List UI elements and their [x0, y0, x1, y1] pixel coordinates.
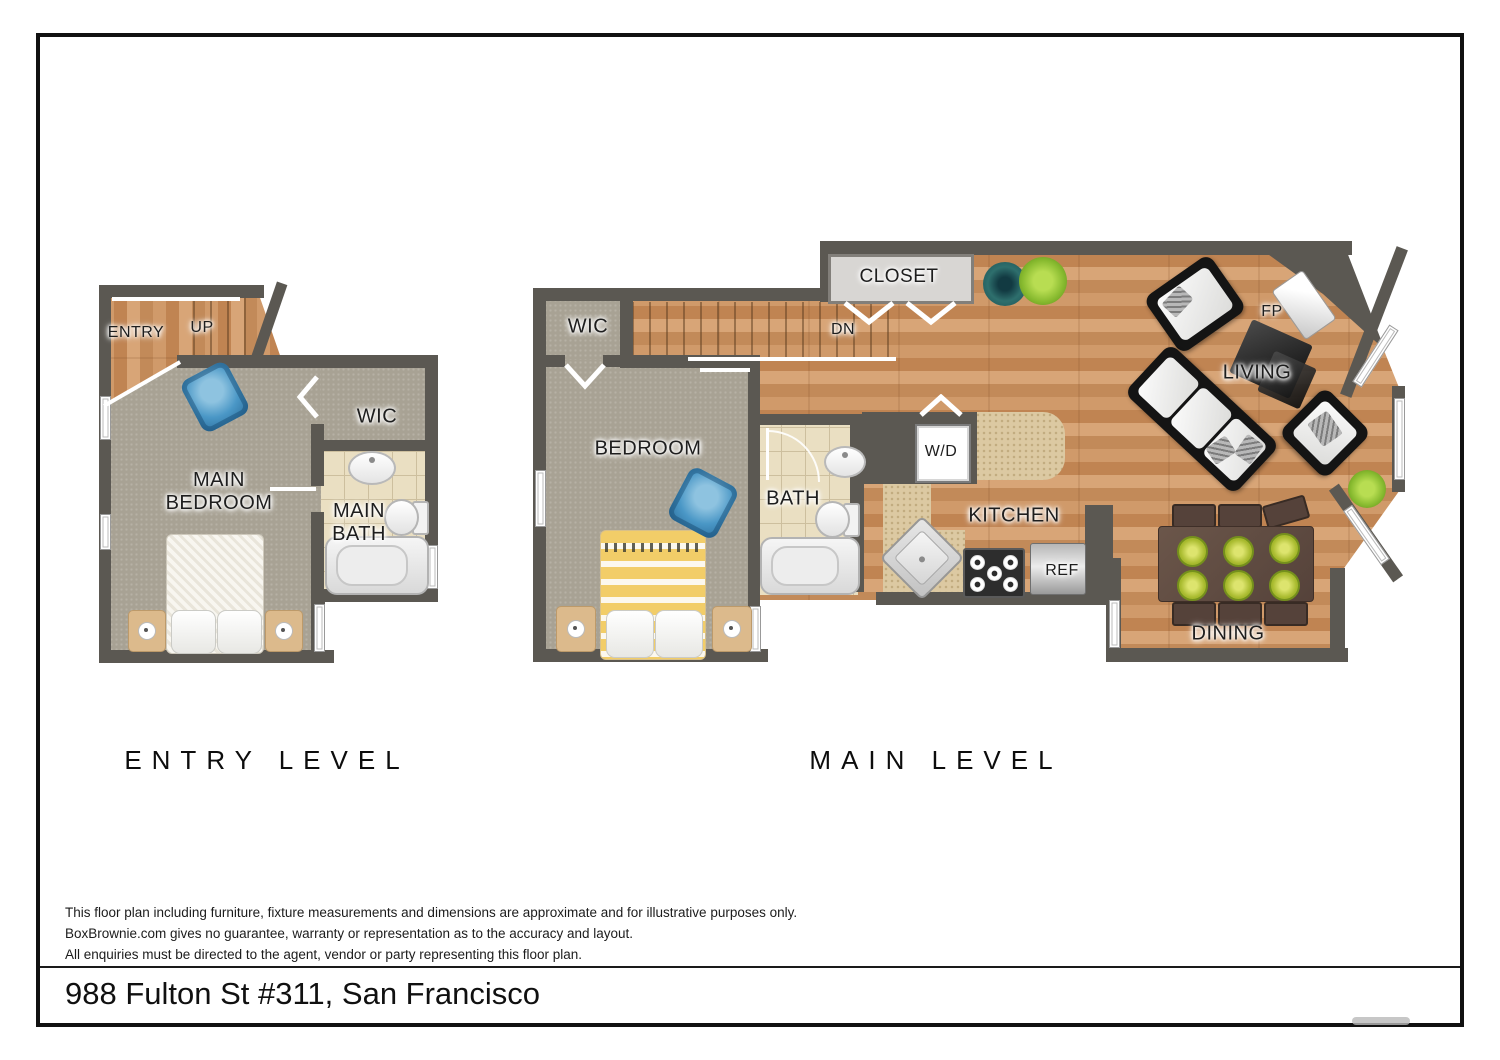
pillow — [655, 610, 703, 658]
nightstand — [128, 610, 166, 652]
toilet — [815, 501, 850, 538]
room-label-bath: BATH — [766, 488, 820, 511]
bathroom-sink — [824, 446, 866, 478]
door-swing-icon — [563, 362, 607, 390]
dining-chair — [1218, 504, 1262, 528]
plant-icon — [1348, 470, 1386, 508]
lamp-icon — [723, 620, 741, 638]
property-address: 988 Fulton St #311, San Francisco — [40, 976, 540, 1012]
disclaimer-line: This floor plan including furniture, fix… — [65, 903, 797, 924]
room-label-up: UP — [190, 319, 213, 337]
wall — [533, 288, 825, 301]
dining-chair — [1264, 602, 1308, 626]
pillow — [217, 610, 262, 654]
room-label-fp: FP — [1261, 303, 1282, 321]
wall — [1106, 648, 1348, 662]
wall — [1330, 568, 1345, 660]
room-label-entry: ENTRY — [108, 324, 164, 342]
lamp-icon — [138, 622, 156, 640]
room-label-dn: DN — [831, 321, 855, 339]
window — [100, 514, 111, 550]
room-label-wic: WIC — [357, 406, 397, 429]
wall — [543, 355, 565, 367]
lamp-icon — [275, 622, 293, 640]
wall — [1085, 505, 1113, 605]
stove — [963, 548, 1025, 598]
door-leaf — [700, 368, 750, 372]
entry-level-title: ENTRY LEVEL — [87, 745, 447, 776]
disclaimer-line: BoxBrownie.com gives no guarantee, warra… — [65, 924, 797, 945]
door-swing-icon — [296, 374, 320, 420]
room-label-closet: CLOSET — [859, 266, 938, 288]
room-label-main-bedroom: MAIN BEDROOM — [153, 469, 285, 515]
bathtub — [760, 537, 860, 595]
pillow — [171, 610, 216, 654]
room-label-kitchen: KITCHEN — [968, 505, 1059, 528]
address-bar: 988 Fulton St #311, San Francisco — [40, 968, 1460, 1020]
window — [535, 470, 546, 527]
room-label-bedroom: BEDROOM — [595, 438, 702, 461]
plant-icon — [1019, 257, 1067, 305]
kitchen-island-counter — [975, 412, 1065, 480]
room-label-main-bath: MAIN BATH — [313, 500, 405, 546]
room-label-ref: REF — [1045, 562, 1079, 580]
border-smudge — [1352, 1017, 1410, 1025]
disclaimer: This floor plan including furniture, fix… — [65, 903, 797, 966]
wall — [311, 424, 324, 486]
place-setting — [1177, 536, 1208, 567]
room-label-wic: WIC — [568, 316, 608, 339]
wall — [603, 355, 633, 367]
closet-door-icon — [904, 300, 958, 326]
place-setting — [1223, 570, 1254, 601]
main-level-title: MAIN LEVEL — [756, 745, 1116, 776]
place-setting — [1223, 536, 1254, 567]
window — [314, 604, 325, 652]
wall — [748, 360, 760, 605]
window — [1109, 600, 1120, 648]
nightstand — [265, 610, 303, 652]
door-swing-icon — [918, 394, 964, 418]
place-setting — [1269, 570, 1300, 601]
window — [1394, 398, 1405, 480]
stair-rail — [688, 357, 896, 361]
wall — [318, 440, 428, 451]
place-setting — [1269, 533, 1300, 564]
bathroom-sink — [348, 451, 396, 485]
room-label-wd: W/D — [925, 443, 958, 461]
nightstand — [556, 606, 596, 652]
entry-wic-floor — [321, 357, 431, 447]
pillow — [606, 610, 654, 658]
dining-chair — [1172, 504, 1216, 528]
lamp-icon — [567, 620, 585, 638]
wall — [755, 414, 862, 425]
nightstand — [712, 606, 752, 652]
door-leaf — [112, 297, 240, 301]
room-label-living: LIVING — [1223, 362, 1292, 385]
disclaimer-line: All enquiries must be directed to the ag… — [65, 945, 797, 966]
room-label-dining: DINING — [1192, 623, 1265, 646]
place-setting — [1177, 570, 1208, 601]
floor-plan-page: ENTRY UP WIC MAIN BEDROOM MAIN BATH — [0, 0, 1500, 1060]
